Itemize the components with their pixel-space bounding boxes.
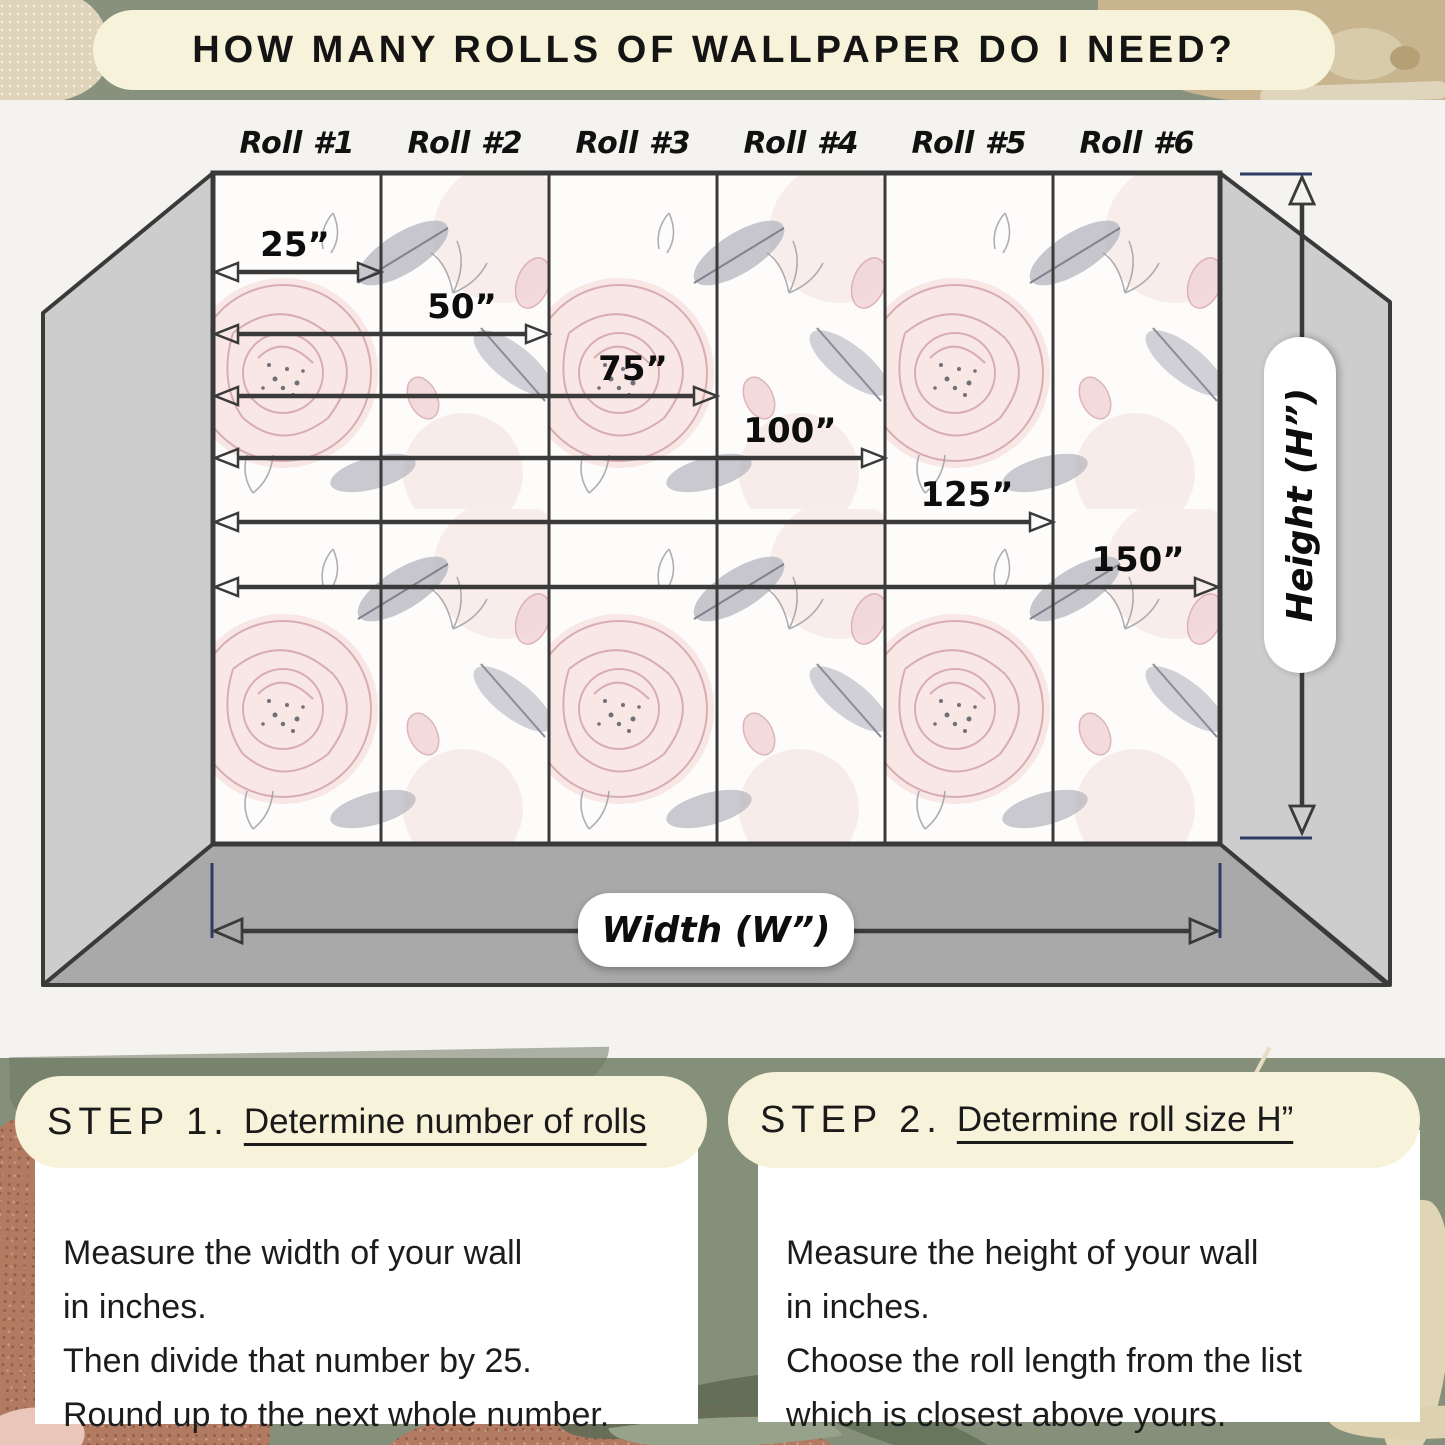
measurement-25: 25” xyxy=(220,225,370,265)
width-label-pill: Width (W”) xyxy=(578,893,854,967)
page-title: HOW MANY ROLLS OF WALLPAPER DO I NEED? xyxy=(192,29,1236,72)
step2-header: STEP 2. Determine roll size H” xyxy=(728,1072,1420,1168)
step2-line-3: Choose the roll length from the list xyxy=(786,1334,1420,1388)
step2-line-1: Measure the height of your wall xyxy=(786,1226,1420,1280)
measurement-75: 75” xyxy=(558,349,708,389)
roll-label-3: Roll #3 xyxy=(539,126,727,161)
measurement-150: 150” xyxy=(1063,540,1213,580)
roll-label-2: Roll #2 xyxy=(371,126,559,161)
step2-heading: Determine roll size H” xyxy=(957,1100,1293,1140)
step2-number: STEP 2. xyxy=(760,1099,943,1142)
step1-line-3: Then divide that number by 25. xyxy=(63,1334,698,1388)
step2-line-2: in inches. xyxy=(786,1280,1420,1334)
step2-text-box: Measure the height of your wall in inche… xyxy=(758,1130,1420,1422)
roll-label-4: Roll #4 xyxy=(707,126,895,161)
roll-label-5: Roll #5 xyxy=(875,126,1063,161)
step1-number: STEP 1. xyxy=(47,1101,230,1144)
height-label-pill: Height (H”) xyxy=(1264,337,1336,673)
roll-label-1: Roll #1 xyxy=(203,126,391,161)
step1-line-2: in inches. xyxy=(63,1280,698,1334)
height-label: Height (H”) xyxy=(1280,388,1321,622)
width-label: Width (W”) xyxy=(602,910,831,951)
step1-header: STEP 1. Determine number of rolls xyxy=(15,1076,707,1168)
header-band: HOW MANY ROLLS OF WALLPAPER DO I NEED? xyxy=(0,0,1445,100)
step1-line-1: Measure the width of your wall xyxy=(63,1226,698,1280)
steps-band: Measure the width of your wall in inches… xyxy=(0,1058,1445,1445)
step2-line-4: which is closest above yours. xyxy=(786,1388,1420,1442)
measurement-100: 100” xyxy=(715,411,865,451)
roll-label-6: Roll #6 xyxy=(1043,126,1231,161)
step1-heading: Determine number of rolls xyxy=(244,1102,647,1142)
title-banner: HOW MANY ROLLS OF WALLPAPER DO I NEED? xyxy=(93,10,1335,90)
measurement-50: 50” xyxy=(387,287,537,327)
step1-text-box: Measure the width of your wall in inches… xyxy=(35,1130,698,1424)
watercolor-dot xyxy=(1390,46,1420,70)
step1-line-4: Round up to the next whole number. xyxy=(63,1388,698,1442)
measurement-125: 125” xyxy=(892,475,1042,515)
wallpaper-roll-guide: HOW MANY ROLLS OF WALLPAPER DO I NEED? xyxy=(0,0,1445,1445)
